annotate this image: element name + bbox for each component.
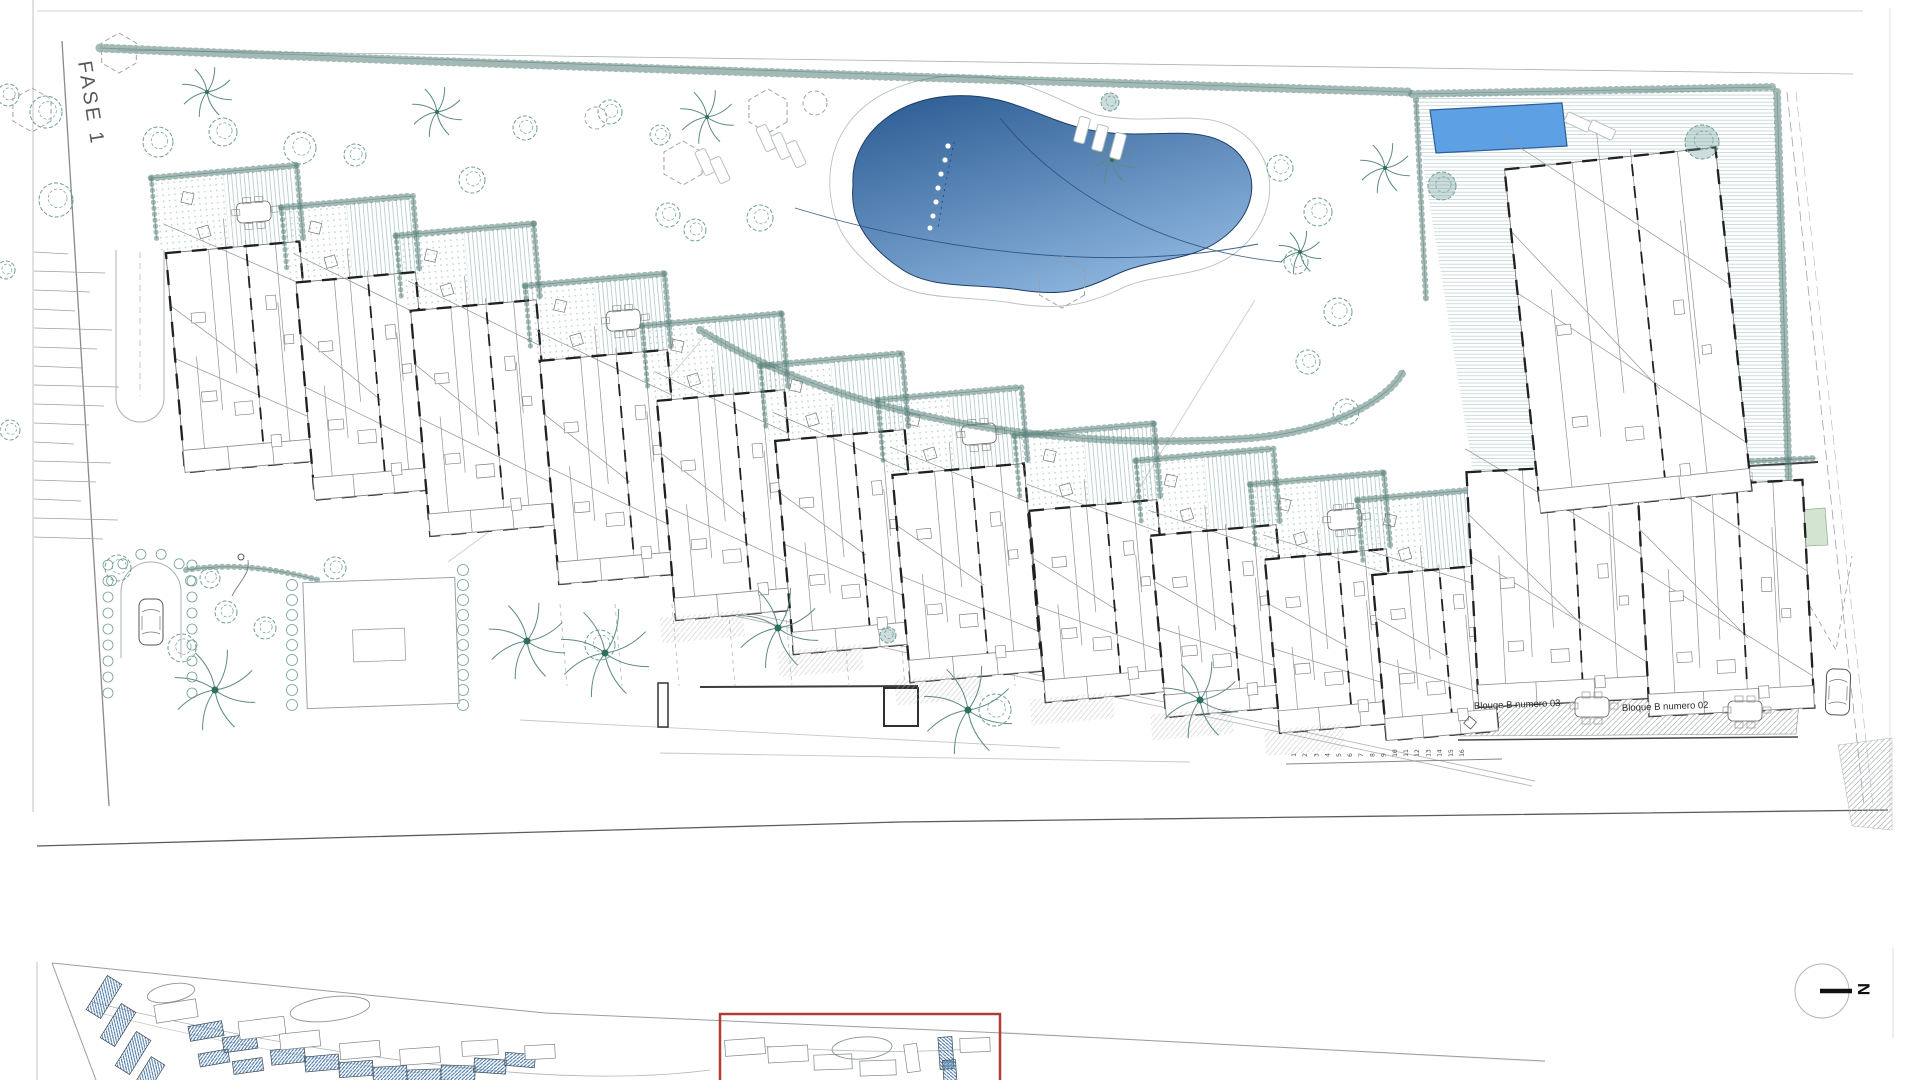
parking-number: 15 [1447, 749, 1455, 757]
shrub [287, 685, 298, 696]
tree-icon [1428, 172, 1456, 200]
parking-number: 14 [1436, 749, 1444, 757]
car-icon [139, 599, 163, 645]
pavilion-hexagon [664, 141, 702, 185]
parking-number: 5 [1335, 753, 1343, 757]
terrace-hatch [894, 672, 982, 705]
furniture [1677, 652, 1693, 663]
step-line [34, 480, 96, 482]
parking-number: 6 [1346, 753, 1354, 757]
furniture [1243, 561, 1254, 576]
furniture [1295, 663, 1311, 674]
tree-icon [168, 634, 196, 662]
shrub [103, 592, 113, 602]
furniture [318, 341, 333, 352]
tree-icon [105, 555, 131, 581]
tree-icon [39, 183, 73, 217]
ov-building-blue [198, 1049, 230, 1067]
furniture [1325, 671, 1344, 686]
step-line [34, 499, 81, 501]
palm-icon [1360, 143, 1410, 193]
furniture [1761, 577, 1772, 592]
parking-line [1286, 759, 1502, 764]
shrub [287, 580, 298, 591]
tree-icon [656, 203, 680, 227]
furniture [1427, 681, 1446, 696]
parking-number: 10 [1391, 749, 1399, 757]
step-line [34, 309, 75, 311]
car-icon [1825, 669, 1851, 716]
furniture [723, 549, 742, 564]
furniture [328, 419, 344, 430]
step-dot [938, 171, 944, 177]
furniture [391, 463, 402, 476]
north-arrow: N [1795, 948, 1893, 1038]
ov-building [860, 1060, 897, 1076]
shrub [156, 549, 166, 559]
shrub [458, 565, 469, 576]
hedge-garland [100, 48, 1408, 92]
furniture [917, 528, 932, 539]
ov-building-blue [441, 1065, 476, 1080]
tree-icon [747, 205, 773, 231]
building-block [1501, 113, 1752, 513]
parking-number: 9 [1380, 753, 1388, 757]
shrub [458, 670, 469, 681]
parking-number: 7 [1357, 753, 1365, 757]
walk-line [660, 753, 1190, 762]
terrace-edge [1458, 737, 1798, 740]
furniture [445, 453, 461, 464]
ov-building [904, 1043, 921, 1073]
furniture [752, 443, 763, 458]
ov-building-blue [942, 1060, 957, 1080]
step-dot [930, 213, 936, 219]
palm-icon [561, 609, 649, 697]
tree-icon [1267, 155, 1293, 181]
furniture [1213, 653, 1232, 668]
ov-building-blue [474, 1058, 507, 1074]
shrub [287, 625, 298, 636]
step-dot [942, 157, 948, 163]
step-line [34, 404, 104, 406]
tree-icon [979, 694, 1011, 726]
furniture [1286, 597, 1301, 608]
ov-building [814, 1054, 853, 1070]
shrub [174, 559, 184, 569]
swimming-pool [795, 76, 1282, 307]
furniture [959, 613, 978, 628]
furniture [799, 497, 814, 508]
step-line [34, 385, 119, 387]
furniture [1358, 699, 1369, 712]
shrub [187, 592, 197, 602]
step-line [34, 518, 118, 520]
furniture [606, 512, 625, 527]
pavilion-circle [803, 91, 827, 115]
site-plan-svg: FASE 1 Blouqe B numero 03 Bloque B numer… [0, 0, 1920, 1080]
furniture [1008, 549, 1018, 559]
furniture [1782, 608, 1791, 617]
tree-icon [1304, 198, 1332, 226]
step-dot [927, 225, 933, 231]
furniture [1625, 426, 1644, 441]
ov-pool [831, 1035, 892, 1061]
step-line [34, 290, 90, 292]
furniture [564, 422, 579, 433]
furniture [841, 584, 860, 599]
furniture [1247, 683, 1258, 696]
furniture [574, 502, 590, 513]
ov-building-blue [407, 1069, 442, 1080]
step-dot [945, 143, 951, 149]
terrace-hatch [1264, 723, 1345, 756]
furniture [1702, 345, 1712, 355]
furniture [995, 645, 1006, 658]
ov-building [399, 1047, 440, 1066]
furniture [1500, 578, 1515, 589]
furniture [635, 405, 646, 420]
furniture [758, 582, 769, 595]
shrub [136, 549, 146, 559]
furniture [522, 396, 532, 406]
tree-icon [880, 627, 896, 643]
shrub [287, 640, 298, 651]
furniture [1680, 463, 1691, 476]
parking-number: 11 [1402, 749, 1410, 757]
furniture [1052, 556, 1067, 567]
shrub [458, 625, 469, 636]
parking-number: 4 [1324, 753, 1332, 757]
furniture [234, 401, 253, 416]
furniture [1598, 564, 1609, 579]
pool-water [853, 96, 1252, 293]
furniture [927, 604, 943, 615]
ov-building [768, 1045, 809, 1063]
tree-icon [284, 132, 316, 164]
terrace-hatch [778, 644, 864, 677]
palm-icon [680, 90, 733, 143]
main-site-plan: FASE 1 Blouqe B numero 03 Bloque B numer… [0, 33, 1892, 1062]
furniture [1391, 609, 1406, 620]
furniture [271, 434, 282, 447]
north-label: N [1854, 983, 1873, 995]
ov-building-blue [339, 1060, 374, 1077]
phase-label: FASE 1 [73, 59, 108, 147]
terrace-hatch [1150, 707, 1234, 740]
shrub [287, 655, 298, 666]
tree-icon [143, 127, 173, 157]
tree-icon [0, 261, 15, 279]
step-line [34, 271, 105, 273]
ov-building-blue [188, 1021, 224, 1042]
parking-number: 1 [1290, 753, 1298, 757]
step-dot [935, 185, 941, 191]
parking-number: 12 [1413, 749, 1421, 757]
furniture [1123, 541, 1134, 556]
tree-icon [200, 568, 220, 588]
furniture [641, 546, 652, 559]
tree-icon [1685, 125, 1719, 159]
step-line [34, 366, 82, 368]
furniture [1557, 324, 1572, 335]
step-dot [933, 199, 939, 205]
furniture [1619, 596, 1628, 605]
furniture [1717, 660, 1736, 674]
shrub [458, 640, 469, 651]
parking-number: 3 [1312, 753, 1320, 757]
shrub [287, 595, 298, 606]
parking-number: 16 [1458, 749, 1466, 757]
shrub [103, 656, 113, 666]
furniture [1551, 649, 1570, 663]
step-line [34, 252, 68, 254]
ov-boundary-left [52, 963, 96, 1080]
tree-icon [254, 617, 276, 639]
ov-building [339, 1040, 380, 1059]
tree-icon [0, 420, 20, 440]
tree-icon [215, 601, 237, 623]
furniture [1669, 591, 1684, 602]
overview-content [37, 962, 1545, 1080]
tree-icon [598, 100, 622, 124]
tree-icon [650, 125, 670, 145]
furniture [1572, 416, 1588, 428]
tree-icon [1101, 93, 1119, 111]
step-line [34, 347, 97, 349]
furniture [1172, 577, 1187, 588]
tree-icon [209, 118, 237, 146]
shrub [287, 700, 298, 711]
walk-line [520, 720, 1060, 748]
furniture [434, 373, 449, 384]
step-line [34, 442, 74, 444]
furniture [284, 334, 294, 344]
tree-icon [344, 144, 366, 166]
shrub [187, 624, 197, 634]
furniture [1128, 667, 1139, 680]
furniture [402, 364, 412, 374]
shrub [287, 610, 298, 621]
ov-building [238, 1016, 286, 1039]
furniture [872, 480, 883, 495]
parking-number: 13 [1424, 749, 1432, 757]
tree-icon [684, 219, 706, 241]
step-line [34, 328, 112, 330]
terrace-hatch [660, 610, 745, 643]
furniture [1508, 641, 1524, 652]
parking-number: 8 [1368, 753, 1376, 757]
figure-icon [238, 554, 244, 560]
furniture [358, 429, 377, 444]
furniture [385, 324, 396, 339]
shrub [458, 610, 469, 621]
furniture [1061, 628, 1077, 639]
furniture [691, 539, 707, 550]
furniture [1759, 686, 1770, 699]
tree-icon [513, 116, 537, 140]
furniture [1595, 675, 1606, 688]
ov-pool [289, 992, 371, 1026]
palm-icon [412, 87, 462, 137]
ov-building-blue [304, 1054, 339, 1072]
shrub [287, 670, 298, 681]
furniture [1182, 645, 1198, 656]
shrub [103, 608, 113, 618]
furniture [1453, 594, 1464, 609]
ov-building [724, 1038, 765, 1057]
furniture [1093, 636, 1112, 651]
shrub [458, 580, 469, 591]
small-pool [1430, 103, 1567, 153]
furniture [990, 512, 1001, 527]
phase-boundary-line [62, 41, 109, 806]
plot-line [560, 604, 567, 686]
furniture [681, 460, 696, 471]
step-line [34, 423, 89, 425]
furniture [266, 295, 277, 310]
step-line [34, 461, 111, 463]
tree-icon [30, 96, 62, 128]
ov-building-blue [373, 1066, 408, 1080]
palm-icon [489, 603, 565, 679]
furniture [1141, 576, 1151, 586]
ov-building-blue [232, 1057, 264, 1074]
shrub [187, 608, 197, 618]
ov-building [960, 1037, 990, 1052]
furniture [1399, 673, 1415, 684]
ov-building [525, 1044, 556, 1060]
furniture [1354, 582, 1365, 597]
retaining-wall [700, 686, 918, 687]
furniture [201, 391, 217, 402]
shrub [103, 624, 113, 634]
tree-icon [0, 84, 19, 106]
furniture [504, 356, 515, 371]
overview-key-plan [37, 962, 1545, 1080]
furniture [476, 464, 495, 479]
ov-building [462, 1040, 499, 1057]
shrub [103, 672, 113, 682]
shrub [103, 640, 113, 650]
drawing-canvas: FASE 1 Blouqe B numero 03 Bloque B numer… [0, 0, 1920, 1080]
tree-icon [324, 557, 346, 579]
south-boundary-line [37, 810, 1888, 846]
tree-icon [1284, 250, 1308, 274]
terrace-hatch [1030, 692, 1115, 725]
tree-icon [1324, 298, 1352, 326]
pavilion-hexagon [749, 89, 787, 133]
furniture [511, 498, 522, 511]
shrub [103, 688, 113, 698]
furniture [809, 574, 825, 585]
tree-icon [459, 167, 485, 193]
tree-icon [1296, 350, 1320, 374]
wall-bracket [658, 683, 668, 727]
hatch-wedge [1838, 738, 1892, 830]
shrub [458, 595, 469, 606]
parking-number: 2 [1301, 753, 1309, 757]
furniture [191, 312, 206, 323]
tree-icon [1333, 399, 1359, 425]
furniture [1673, 300, 1684, 315]
shrub [458, 655, 469, 666]
palm-icon [182, 67, 232, 117]
plaza [303, 577, 459, 708]
